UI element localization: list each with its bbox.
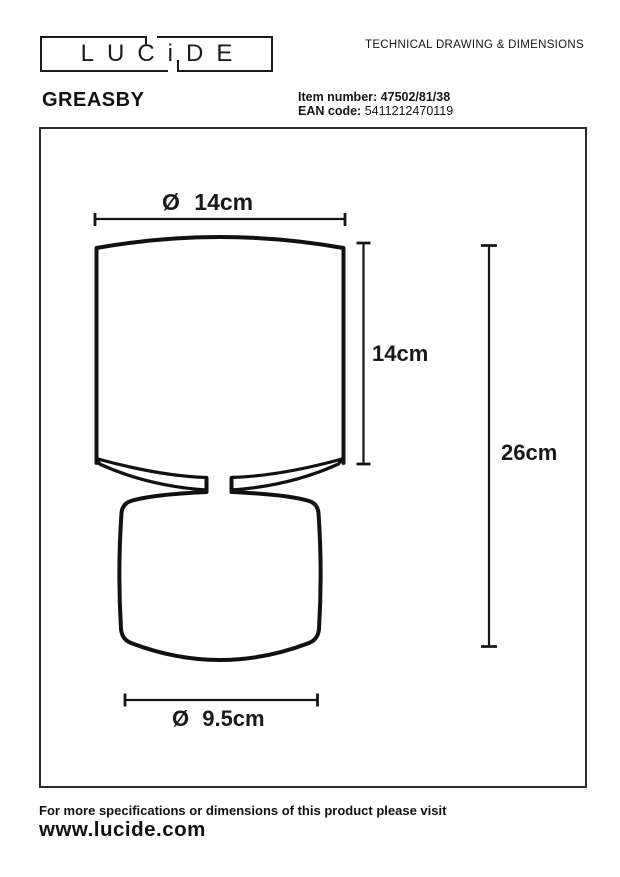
ean-code-value: 5411212470119: [365, 104, 454, 118]
item-number-value: 47502/81/38: [381, 90, 451, 104]
ean-code-line: EAN code: 5411212470119: [298, 104, 453, 118]
technical-sheet: LUCiDE TECHNICAL DRAWING & DIMENSIONS GR…: [0, 0, 620, 877]
item-number-line: Item number: 47502/81/38: [298, 90, 453, 104]
item-number-label: Item number:: [298, 90, 377, 104]
base-diameter-label: Ø 9.5cm: [172, 706, 265, 732]
footer-note: For more specifications or dimensions of…: [39, 803, 446, 818]
item-info-block: Item number: 47502/81/38 EAN code: 54112…: [298, 90, 453, 118]
logo-tick-top: [145, 36, 147, 46]
total-height-label: 26cm: [501, 440, 557, 466]
footer-website-link[interactable]: www.lucide.com: [39, 818, 206, 842]
ean-code-label: EAN code:: [298, 104, 361, 118]
doc-title: TECHNICAL DRAWING & DIMENSIONS: [365, 39, 584, 51]
top-diameter-label: Ø 14cm: [162, 189, 253, 216]
lucide-logo-text: LUCiDE: [42, 38, 271, 70]
shade-height-label: 14cm: [372, 341, 428, 367]
lucide-logo: LUCiDE: [40, 36, 273, 72]
product-name: GREASBY: [42, 89, 144, 112]
logo-tick-bottom: [177, 60, 179, 72]
